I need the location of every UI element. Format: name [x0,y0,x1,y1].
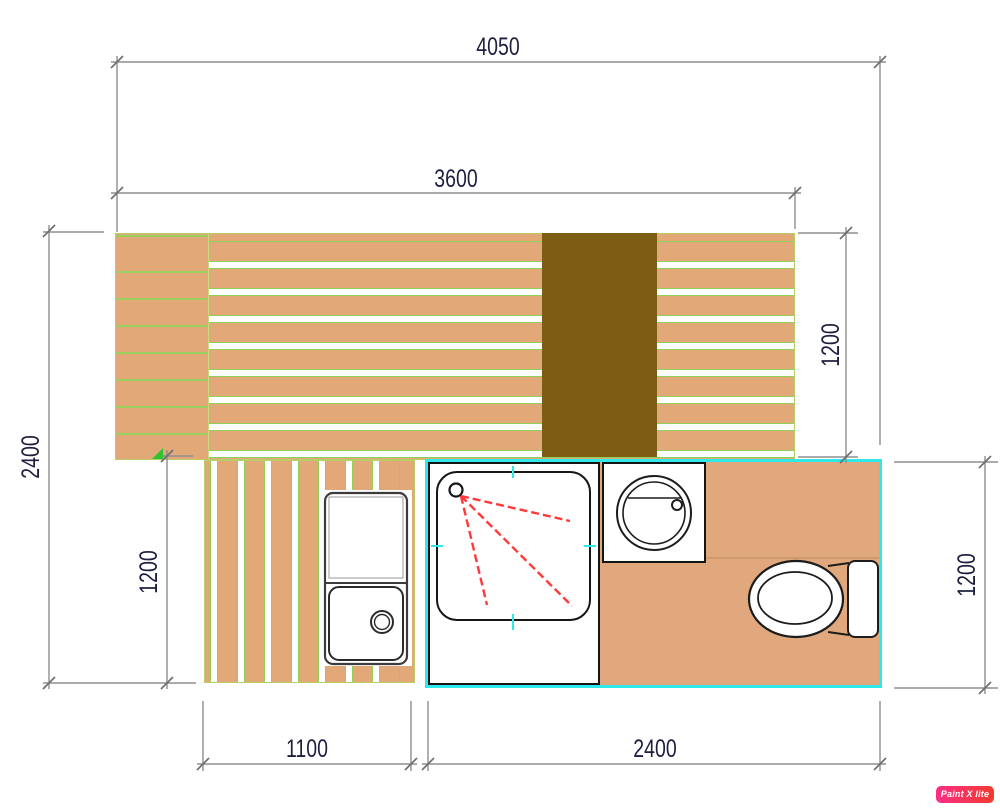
bathroom-fixtures [428,462,879,685]
bathroom-area [425,459,882,688]
dim-label-right-upper: 1200 [818,314,844,376]
dim-label-left-lower: 1200 [136,541,162,603]
dim-label-right-lower: 1200 [954,544,980,606]
shower-head-icon [450,484,463,497]
dark-brown-block [542,233,657,457]
floor-plan-canvas: 4050 3600 2400 1200 1200 1200 1100 2400 … [0,0,1000,809]
kitchen-sink-unit [318,486,416,670]
dim-label-bottom-bathroom: 2400 [624,736,686,762]
dim-label-left-overall: 2400 [18,426,44,488]
toilet-tank [848,561,878,637]
deck-left-plank-column [116,234,209,459]
dim-label-deck-width: 3600 [425,166,487,192]
basin-faucet-icon [672,500,682,510]
dim-label-bottom-walkway: 1100 [276,736,338,762]
toilet [749,561,878,637]
basin-outer-rim [617,476,691,550]
dim-label-top-overall: 4050 [467,34,529,60]
deck-horizontal-planks [115,233,795,460]
paint-x-lite-watermark: Paint X lite [936,786,994,803]
